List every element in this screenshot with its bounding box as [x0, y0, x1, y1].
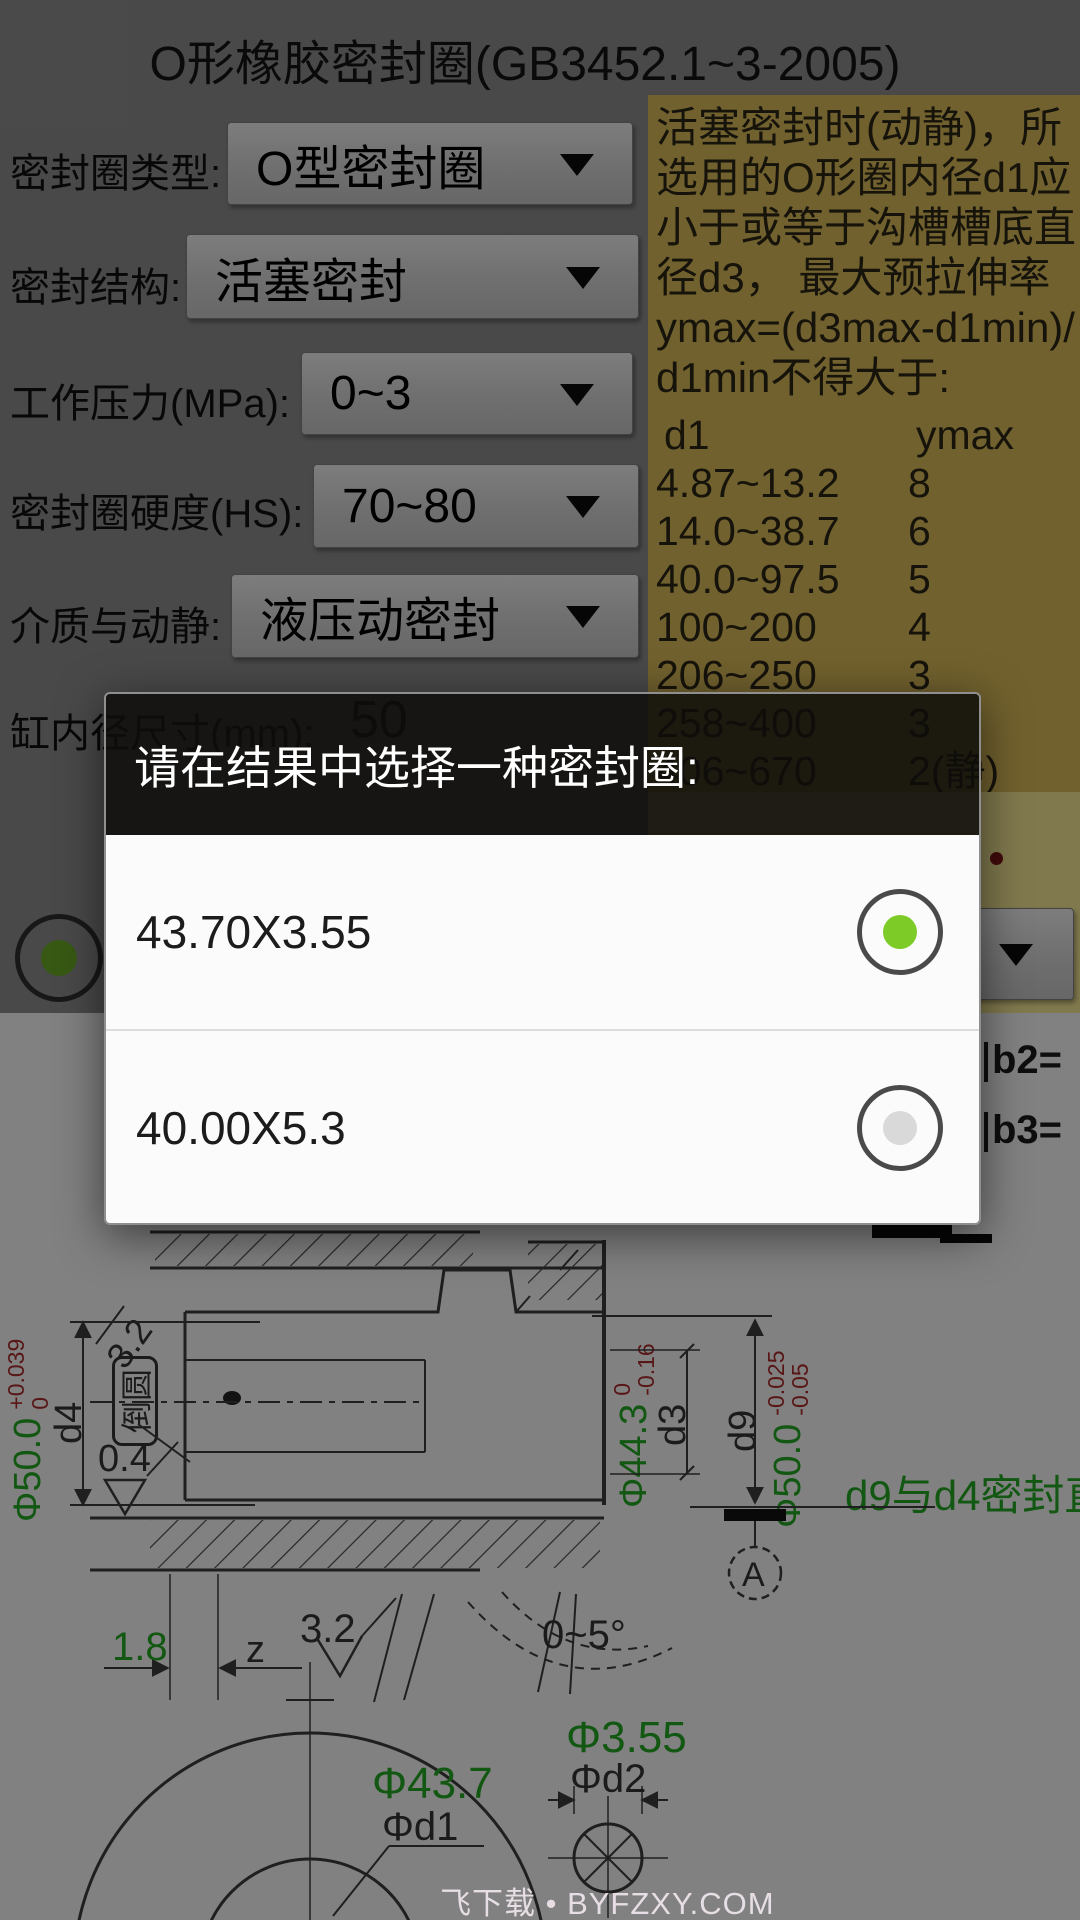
option-label: 43.70X3.55: [136, 905, 371, 959]
dialog-header: 请在结果中选择一种密封圈:: [106, 694, 979, 835]
selection-dialog: 请在结果中选择一种密封圈: 43.70X3.55 40.00X5.3: [104, 692, 981, 1225]
site-watermark: 飞下载 • BYFZXY.COM: [440, 1878, 775, 1920]
radio-dot: [883, 915, 917, 949]
option-label: 40.00X5.3: [136, 1101, 346, 1155]
radio-dot: [883, 1111, 917, 1145]
seal-option-2[interactable]: 40.00X5.3: [106, 1031, 979, 1225]
app-screen: O形橡胶密封圈(GB3452.1~3-2005) 密封圈类型: 密封结构: 工作…: [0, 0, 1080, 1920]
radio-button[interactable]: [857, 1085, 943, 1171]
radio-button[interactable]: [857, 889, 943, 975]
seal-option-1[interactable]: 43.70X3.55: [106, 835, 979, 1029]
dialog-title: 请在结果中选择一种密封圈:: [134, 732, 699, 798]
dialog-body: 43.70X3.55 40.00X5.3: [106, 835, 979, 1225]
